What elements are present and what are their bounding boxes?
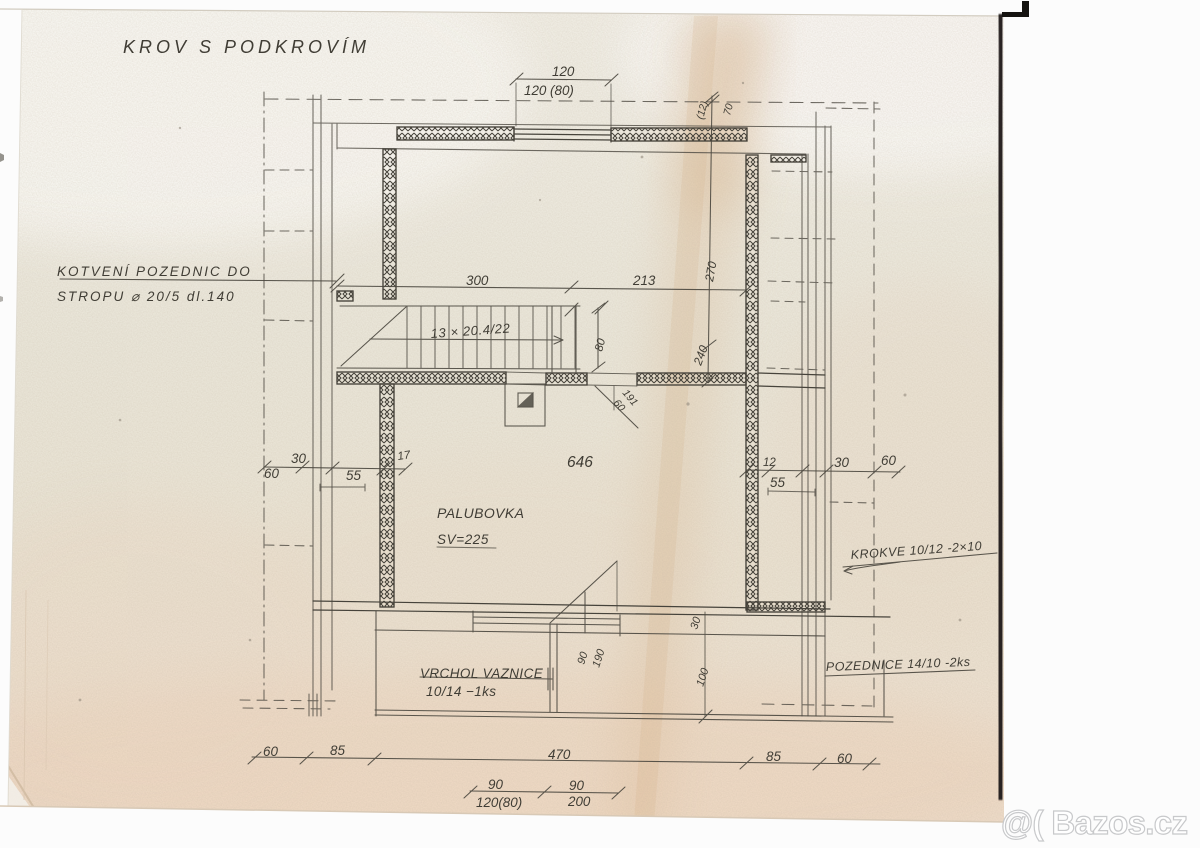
svg-text:120 (80): 120 (80)	[524, 83, 574, 98]
svg-text:@( Bazos.cz: @( Bazos.cz	[1001, 804, 1188, 841]
svg-text:213: 213	[632, 273, 656, 288]
svg-text:STROPU ⌀ 20/5 dl.140: STROPU ⌀ 20/5 dl.140	[57, 289, 236, 304]
svg-text:60: 60	[264, 466, 279, 481]
svg-text:KROV S PODKROVÍM: KROV S PODKROVÍM	[123, 37, 370, 57]
svg-text:60: 60	[881, 453, 896, 468]
svg-text:300: 300	[466, 273, 489, 288]
svg-text:60: 60	[837, 751, 852, 766]
svg-text:55: 55	[346, 468, 361, 483]
svg-text:10/14 −1ks: 10/14 −1ks	[426, 684, 496, 699]
svg-text:55: 55	[770, 475, 785, 490]
svg-text:200: 200	[567, 794, 591, 809]
svg-text:12: 12	[763, 457, 776, 469]
svg-text:85: 85	[330, 743, 345, 758]
svg-text:SV=225: SV=225	[437, 532, 489, 547]
svg-text:90: 90	[488, 777, 503, 792]
svg-text:120(80): 120(80)	[476, 795, 522, 810]
svg-text:60: 60	[263, 744, 278, 759]
svg-text:30: 30	[291, 451, 306, 466]
svg-text:90: 90	[569, 778, 584, 793]
svg-text:120: 120	[552, 64, 575, 79]
svg-text:646: 646	[567, 454, 593, 471]
svg-text:470: 470	[548, 747, 571, 762]
svg-text:85: 85	[766, 749, 781, 764]
svg-text:VRCHOL VAZNICE: VRCHOL VAZNICE	[420, 666, 544, 681]
svg-text:PALUBOVKA: PALUBOVKA	[437, 505, 524, 521]
svg-text:30: 30	[834, 455, 849, 470]
svg-text:KOTVENÍ POZEDNIC DO: KOTVENÍ POZEDNIC DO	[57, 264, 252, 279]
svg-text:17: 17	[397, 449, 412, 463]
